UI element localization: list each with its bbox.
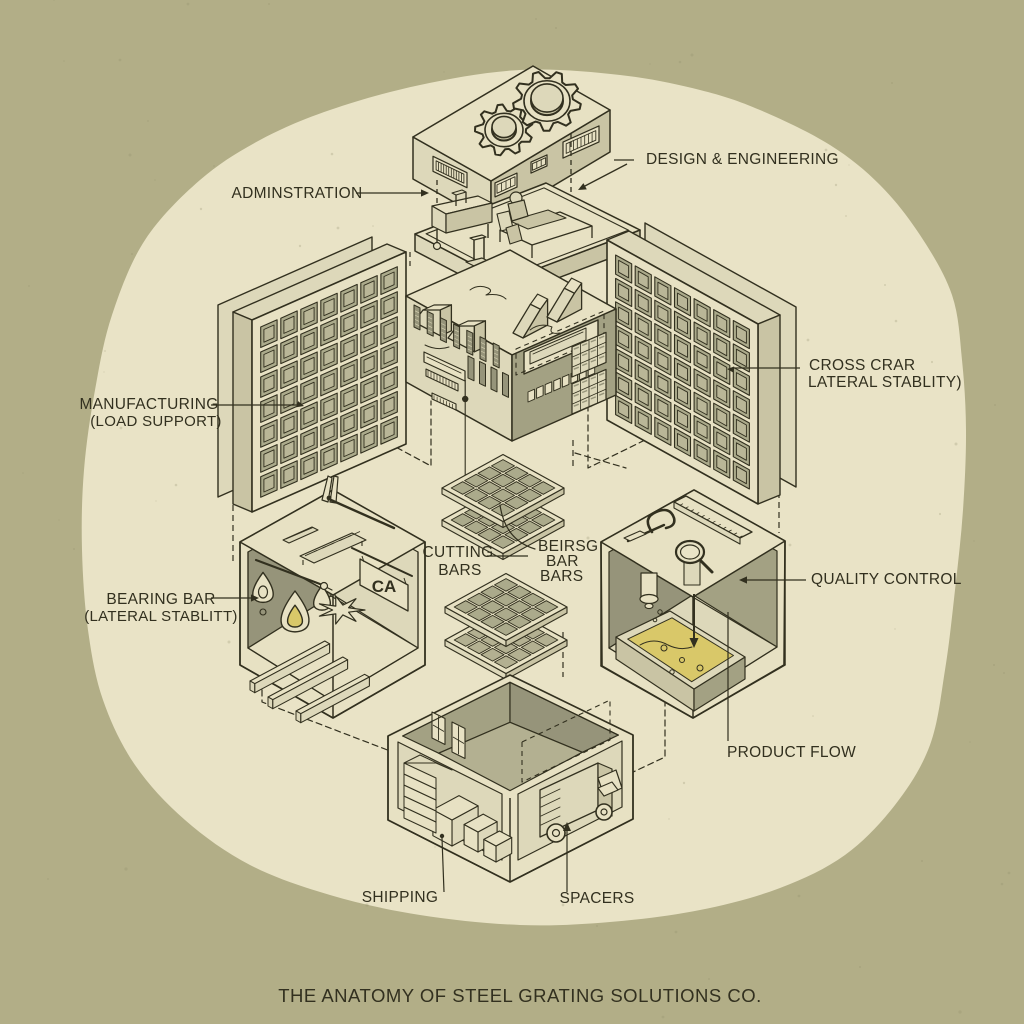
- svg-text:SHIPPING: SHIPPING: [362, 889, 438, 906]
- svg-text:PRODUCT FLOW: PRODUCT FLOW: [727, 744, 856, 761]
- svg-text:SPACERS: SPACERS: [559, 890, 634, 907]
- svg-text:CROSS CRAR: CROSS CRAR: [809, 357, 915, 374]
- svg-text:ADMINSTRATION: ADMINSTRATION: [231, 185, 362, 202]
- svg-text:QUALITY CONTROL: QUALITY CONTROL: [811, 571, 962, 588]
- svg-text:CUTTING: CUTTING: [423, 544, 494, 561]
- svg-text:LATERAL STABLITY): LATERAL STABLITY): [808, 374, 962, 391]
- svg-text:CA: CA: [372, 577, 397, 596]
- svg-text:(LATERAL STABLITT): (LATERAL STABLITT): [84, 608, 237, 625]
- svg-text:BARS: BARS: [438, 562, 481, 579]
- svg-text:THE ANATOMY OF STEEL GRATING S: THE ANATOMY OF STEEL GRATING SOLUTIONS C…: [278, 985, 762, 1006]
- svg-text:(LOAD SUPPORT): (LOAD SUPPORT): [90, 413, 221, 430]
- svg-text:BEARING BAR: BEARING BAR: [106, 591, 215, 608]
- svg-text:MANUFACTURING: MANUFACTURING: [79, 396, 218, 413]
- svg-text:DESIGN & ENGINEERING: DESIGN & ENGINEERING: [646, 151, 839, 168]
- svg-text:BARS: BARS: [540, 568, 583, 585]
